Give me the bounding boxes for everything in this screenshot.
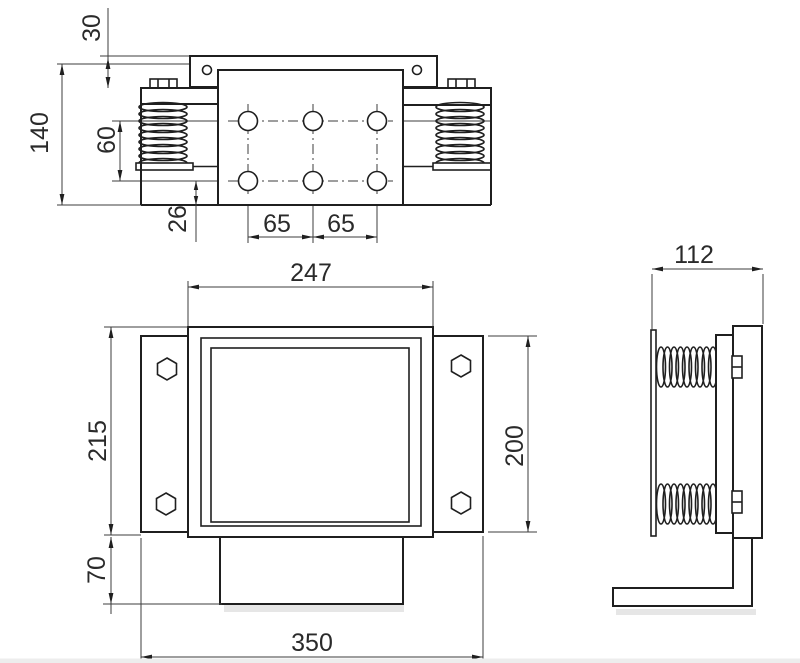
side-bolt-top — [732, 356, 742, 378]
dim-label-30: 30 — [78, 14, 106, 42]
dim-30: 30 — [78, 8, 110, 88]
dim-215: 215 — [84, 327, 113, 535]
plate-hole — [239, 112, 258, 131]
bottom-protrusion — [220, 537, 403, 604]
flange-hole-left — [203, 66, 212, 75]
dim-label-350: 350 — [291, 629, 333, 657]
left-wing-plate — [141, 336, 188, 532]
side-middle-plate — [716, 335, 733, 533]
plate-hole — [304, 112, 323, 131]
front-view: 247 215 70 350 200 — [83, 259, 537, 662]
dim-label-247: 247 — [290, 259, 332, 287]
right-wing-plate — [433, 336, 483, 532]
dim-label-70: 70 — [83, 556, 111, 584]
dim-label-65-left: 65 — [263, 210, 291, 238]
center-bolt-plate — [218, 70, 403, 205]
top-view: 30 140 60 26 65 — [26, 8, 491, 243]
dim-26: 26 — [164, 181, 198, 242]
dim-200: 200 — [501, 336, 530, 532]
page-edge-strip — [0, 659, 800, 663]
dim-247: 247 — [188, 259, 433, 289]
dim-label-112: 112 — [674, 241, 714, 269]
side-left-plate — [651, 330, 656, 536]
hex-bolt — [157, 493, 176, 515]
hex-bolt — [452, 492, 471, 514]
technical-drawing: 30 140 60 26 65 — [0, 0, 800, 663]
flange-hole-right — [413, 66, 422, 75]
dim-label-60: 60 — [93, 126, 121, 154]
hex-bolt — [158, 358, 177, 380]
dim-140: 140 — [26, 64, 64, 205]
side-bottom-spring — [657, 484, 718, 524]
left-bolt-head — [150, 79, 177, 88]
dim-65-left: 65 — [248, 210, 313, 239]
right-coil-spring — [436, 103, 484, 168]
side-top-spring — [657, 347, 718, 387]
hex-bolt — [452, 355, 471, 377]
technical-drawing-page: 30 140 60 26 65 — [0, 0, 800, 663]
left-coil-spring — [139, 103, 187, 168]
dim-112: 112 — [652, 241, 763, 271]
plate-hole — [304, 172, 323, 191]
foot-shadow — [616, 609, 756, 615]
side-bolt-bottom — [732, 491, 742, 513]
dim-label-26: 26 — [164, 205, 192, 233]
dim-label-200: 200 — [501, 425, 529, 467]
dim-70: 70 — [83, 537, 113, 614]
side-view-extension-lines — [652, 274, 763, 330]
plate-hole — [368, 172, 387, 191]
plate-hole — [368, 112, 387, 131]
dim-60: 60 — [93, 121, 122, 181]
protrusion-shadow — [224, 605, 404, 612]
dim-65-right: 65 — [313, 210, 377, 239]
right-bolt-head — [448, 79, 475, 88]
dim-label-65-right: 65 — [327, 210, 355, 238]
l-foot-bracket — [613, 533, 752, 606]
central-housing — [188, 327, 433, 537]
side-view: 112 — [613, 241, 763, 615]
plate-hole — [239, 172, 258, 191]
dim-label-215: 215 — [84, 420, 112, 462]
dim-label-140: 140 — [26, 112, 54, 154]
dim-350: 350 — [141, 629, 483, 659]
